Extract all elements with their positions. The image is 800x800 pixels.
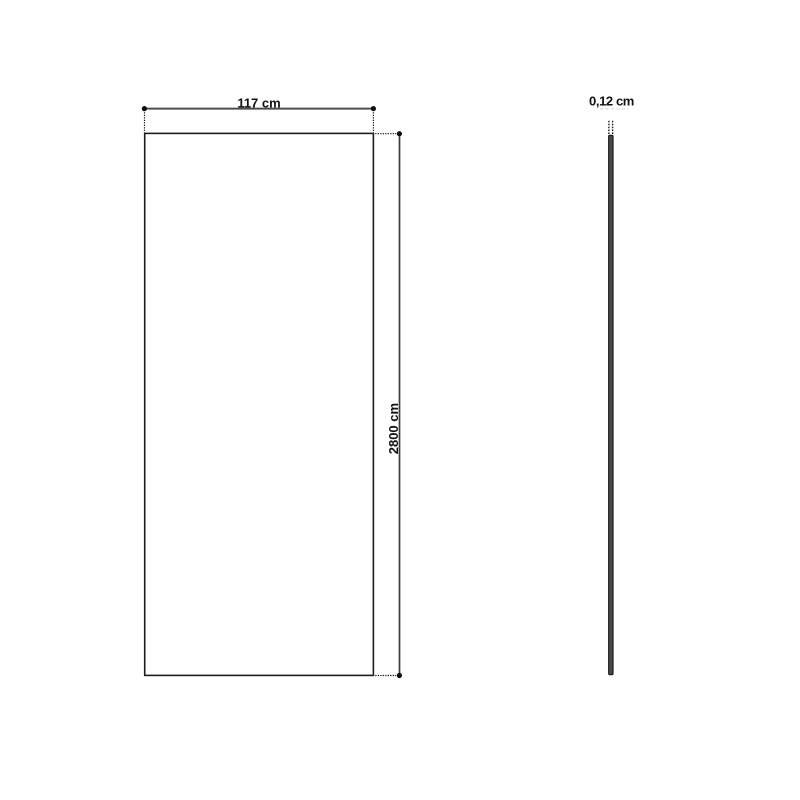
svg-text:2800 cm: 2800 cm: [386, 403, 401, 454]
svg-text:0,12 cm: 0,12 cm: [589, 93, 634, 108]
svg-text:117 cm: 117 cm: [237, 96, 280, 111]
